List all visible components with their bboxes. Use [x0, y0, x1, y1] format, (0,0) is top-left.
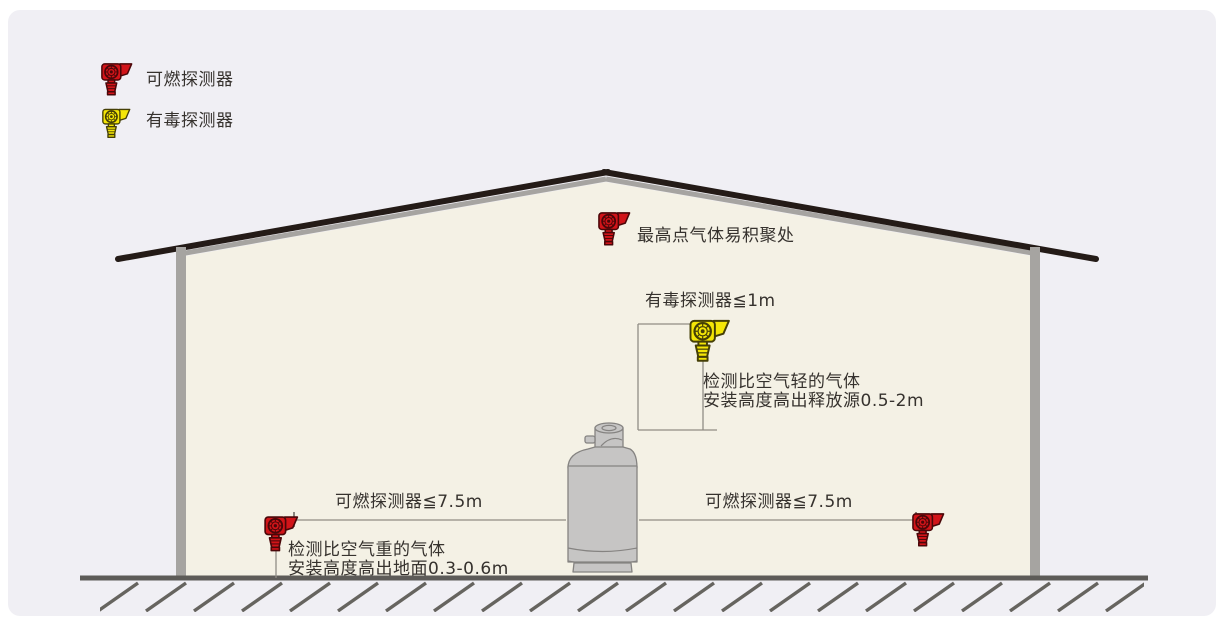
toxic-detector-icon — [688, 316, 732, 366]
wall-left — [176, 247, 186, 578]
toxic-distance-label: 有毒探测器≦1m — [645, 291, 776, 311]
legend-combustible-label: 可燃探测器 — [146, 70, 234, 90]
light-gas-note-line2: 安装高度高出释放源0.5-2m — [703, 392, 924, 411]
legend-toxic-detector-icon — [101, 106, 132, 141]
building-scene — [0, 0, 1224, 625]
right-distance-label: 可燃探测器≦7.5m — [705, 492, 853, 512]
left-distance-label: 可燃探测器≦7.5m — [335, 492, 483, 512]
wall-right — [1030, 247, 1040, 578]
legend-combustible-detector-icon — [100, 60, 134, 99]
ground-hatching — [100, 581, 1144, 613]
peak-note-label: 最高点气体易积聚处 — [637, 226, 795, 246]
light-gas-note-line1: 检测比空气轻的气体 — [703, 373, 924, 392]
peak-combustible-detector-icon — [597, 209, 632, 249]
heavy-gas-note-line2: 安装高度高出地面0.3-0.6m — [288, 560, 509, 579]
light-gas-note: 检测比空气轻的气体 安装高度高出释放源0.5-2m — [703, 373, 924, 411]
heavy-gas-note: 检测比空气重的气体 安装高度高出地面0.3-0.6m — [288, 541, 509, 579]
right-wall-combustible-detector-icon — [911, 510, 946, 550]
gas-detector-installation-diagram: { "legend": { "combustible_label": "可燃探测… — [0, 0, 1224, 625]
legend-toxic-label: 有毒探测器 — [146, 111, 234, 131]
heavy-gas-note-line1: 检测比空气重的气体 — [288, 541, 509, 560]
